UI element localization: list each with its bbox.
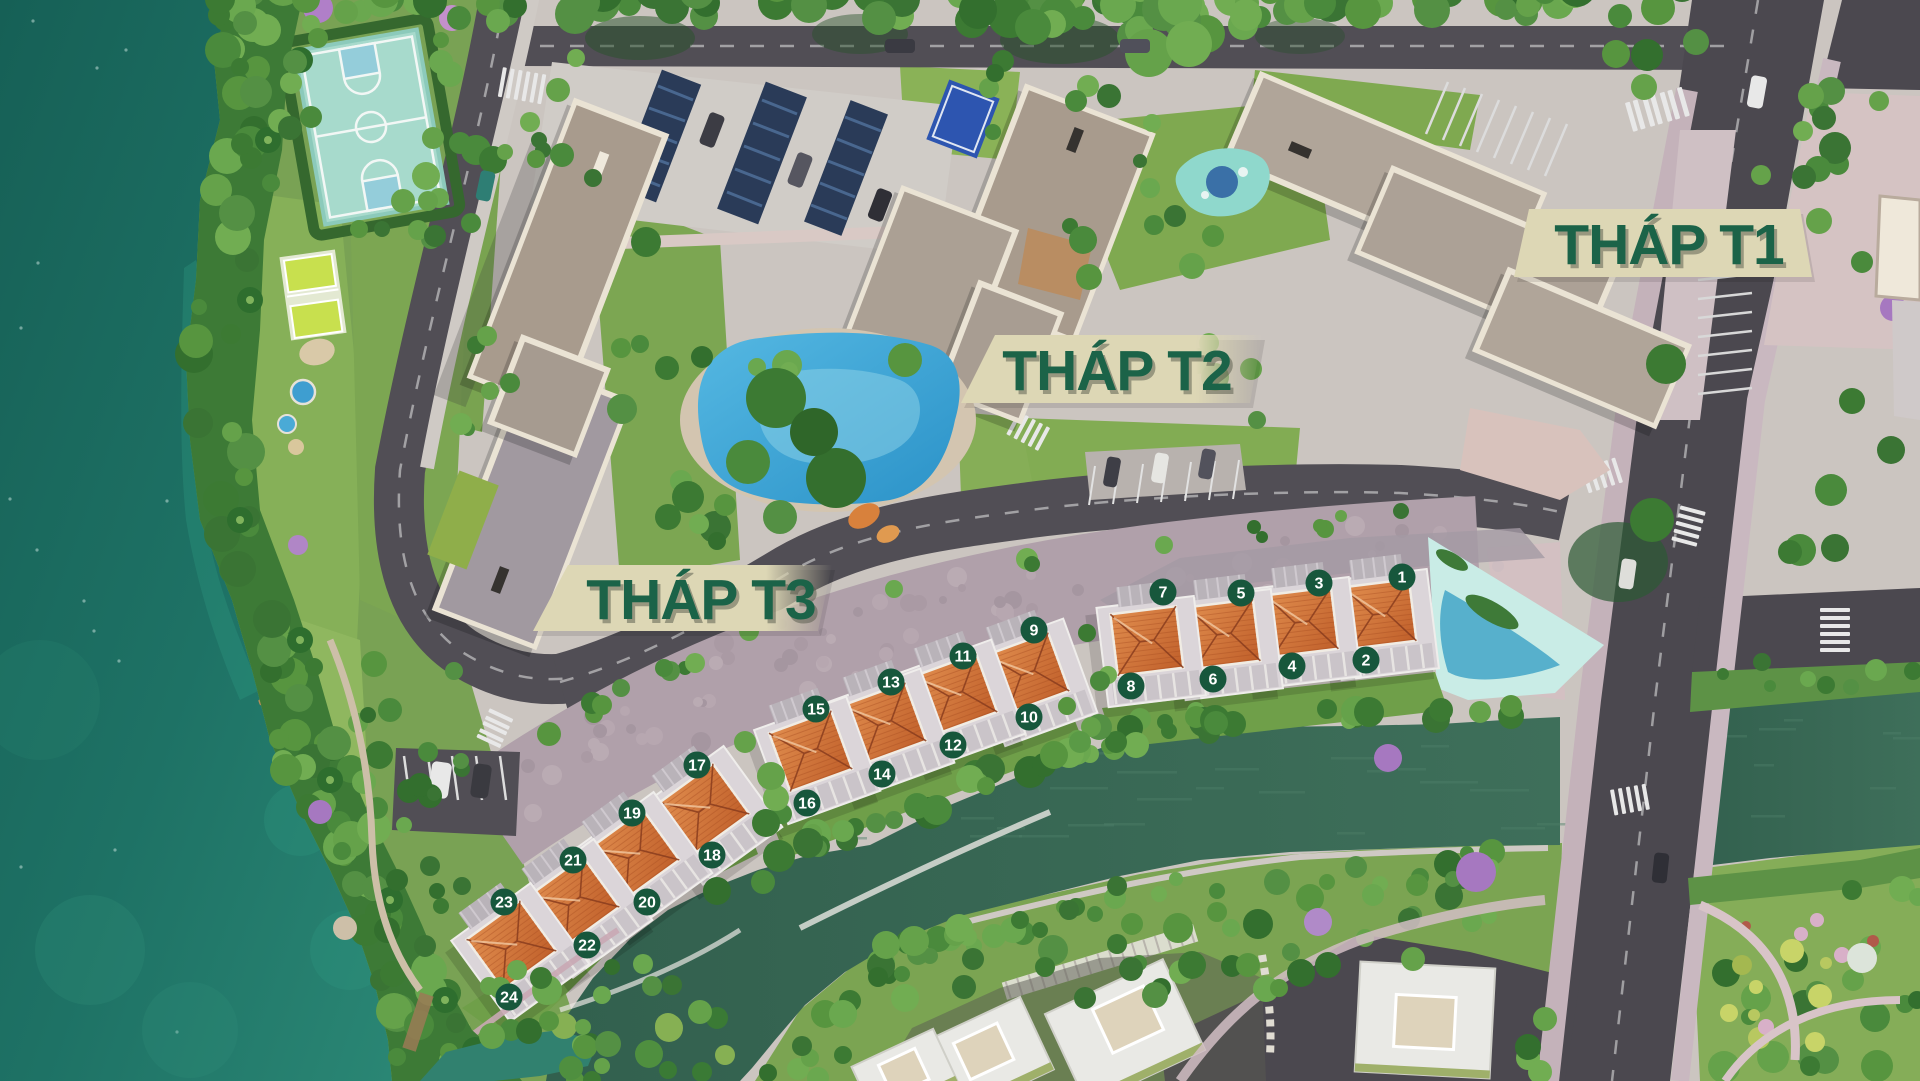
svg-text:7: 7 <box>1159 585 1168 602</box>
svg-text:17: 17 <box>688 758 706 775</box>
svg-text:5: 5 <box>1237 586 1246 603</box>
svg-text:9: 9 <box>1030 623 1039 640</box>
svg-text:THÁP T1: THÁP T1 <box>1554 213 1784 277</box>
svg-text:24: 24 <box>500 990 518 1007</box>
svg-text:THÁP T3: THÁP T3 <box>586 568 816 632</box>
svg-text:18: 18 <box>703 848 721 865</box>
svg-text:19: 19 <box>623 806 641 823</box>
svg-text:THÁP T2: THÁP T2 <box>1002 339 1232 403</box>
svg-text:21: 21 <box>564 853 582 870</box>
svg-text:1: 1 <box>1398 570 1407 587</box>
svg-text:16: 16 <box>798 796 816 813</box>
svg-text:3: 3 <box>1315 576 1324 593</box>
svg-text:12: 12 <box>944 738 962 755</box>
svg-text:15: 15 <box>807 702 825 719</box>
svg-text:23: 23 <box>495 895 513 912</box>
svg-text:2: 2 <box>1362 653 1371 670</box>
svg-text:11: 11 <box>955 649 972 666</box>
svg-text:22: 22 <box>578 938 596 955</box>
svg-text:8: 8 <box>1127 679 1136 696</box>
svg-text:13: 13 <box>882 675 900 692</box>
svg-text:20: 20 <box>638 895 656 912</box>
svg-text:14: 14 <box>873 767 891 784</box>
svg-text:10: 10 <box>1020 710 1038 727</box>
svg-text:4: 4 <box>1288 659 1297 676</box>
svg-text:6: 6 <box>1209 672 1218 689</box>
